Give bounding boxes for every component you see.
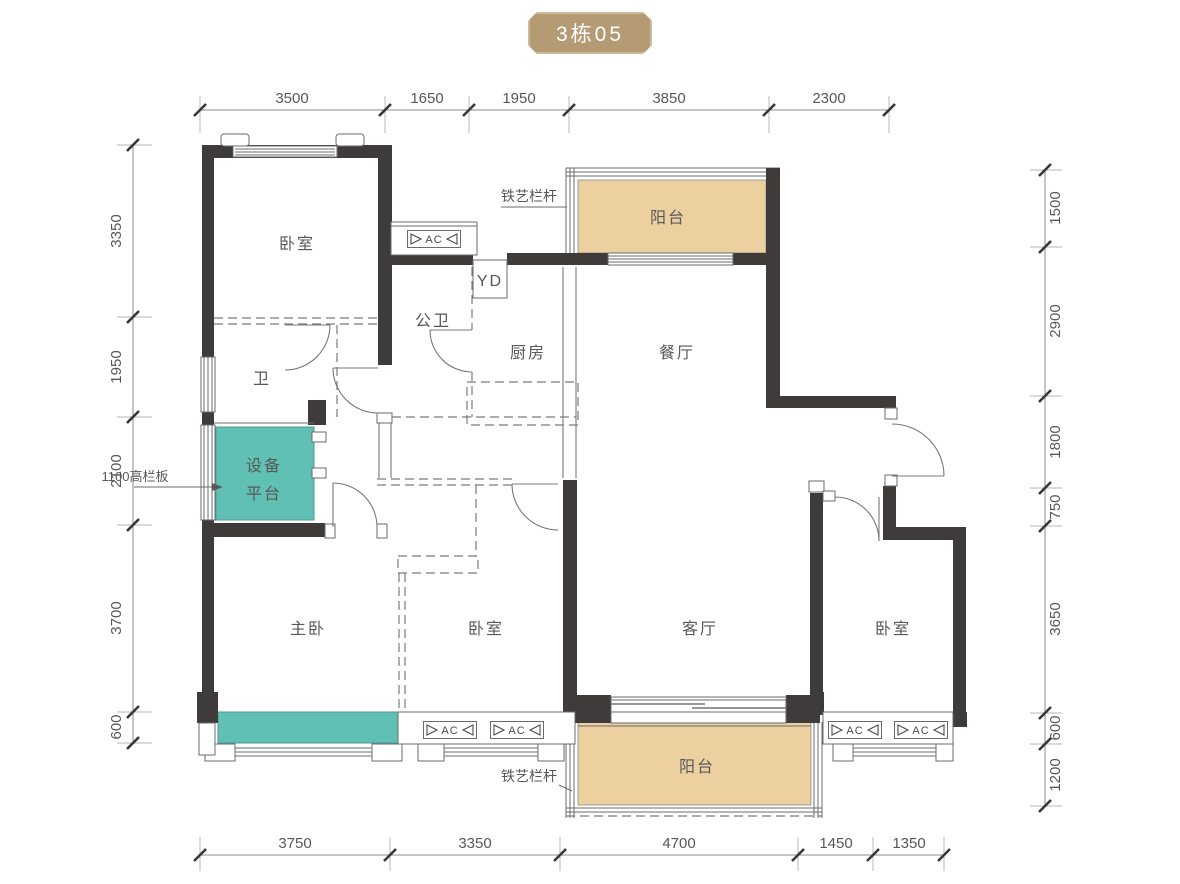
dim-top-1: 3500 bbox=[275, 90, 308, 107]
dim-right-1: 1500 bbox=[1047, 191, 1064, 224]
room-label-balcony-top: 阳台 bbox=[650, 209, 686, 227]
room-label-equipment-2: 平台 bbox=[246, 485, 282, 503]
dim-top-2: 1650 bbox=[410, 90, 443, 107]
dim-bottom-3: 4700 bbox=[662, 835, 695, 852]
dimension-chain-right: 1500 2900 1800 750 3650 600 1200 bbox=[1030, 164, 1064, 812]
ac-unit-mid-right bbox=[491, 722, 544, 739]
room-label-living: 客厅 bbox=[682, 620, 718, 638]
ac-unit-right-left bbox=[829, 722, 882, 739]
dim-right-2: 2900 bbox=[1047, 304, 1064, 337]
dim-bottom-1: 3750 bbox=[278, 835, 311, 852]
dim-bottom-2: 3350 bbox=[458, 835, 491, 852]
room-label-equipment-1: 设备 bbox=[246, 457, 282, 475]
dim-right-3: 1800 bbox=[1047, 425, 1064, 458]
dimension-chain-top: 3500 1650 1950 3850 2300 bbox=[194, 90, 895, 133]
room-label-master-bedroom: 主卧 bbox=[290, 620, 326, 638]
dimension-chain-bottom: 3750 3350 4700 1450 1350 bbox=[194, 835, 950, 871]
ac-unit-top bbox=[408, 231, 461, 248]
master-bay-window bbox=[218, 712, 398, 743]
room-label-kitchen: 厨房 bbox=[510, 344, 546, 362]
yd-shaft-label: YD bbox=[477, 273, 503, 290]
dim-top-5: 2300 bbox=[812, 90, 845, 107]
dim-left-2: 1950 bbox=[108, 350, 125, 383]
dimension-chain-left: 3350 1950 2100 3700 600 bbox=[108, 139, 152, 749]
room-label-bath-master: 卫 bbox=[253, 371, 271, 388]
dim-left-4: 3700 bbox=[108, 601, 125, 634]
dim-top-4: 3850 bbox=[652, 90, 685, 107]
ac-units: YD bbox=[408, 231, 948, 739]
floor-plan-page: 3栋05 AC 3500 1650 1950 3850 2300 bbox=[0, 0, 1180, 884]
dim-right-5: 3650 bbox=[1047, 602, 1064, 635]
dim-left-5: 600 bbox=[108, 714, 125, 739]
room-label-bedroom-right: 卧室 bbox=[875, 620, 911, 638]
room-label-bedroom-top-left: 卧室 bbox=[279, 235, 315, 253]
iron-railing-bottom-label: 铁艺栏杆 bbox=[501, 768, 557, 784]
room-label-bedroom-middle: 卧室 bbox=[468, 620, 504, 638]
iron-railing-top-label: 铁艺栏杆 bbox=[501, 188, 557, 204]
room-label-dining: 餐厅 bbox=[659, 344, 695, 362]
ac-unit-right-right bbox=[895, 722, 948, 739]
dim-right-7: 1200 bbox=[1047, 758, 1064, 791]
ac-unit-mid-left bbox=[424, 722, 477, 739]
room-label-balcony-bottom: 阳台 bbox=[679, 758, 715, 776]
dim-right-4: 750 bbox=[1047, 494, 1064, 519]
room-label-bath-public: 公卫 bbox=[415, 313, 451, 330]
dim-bottom-4: 1450 bbox=[819, 835, 852, 852]
dim-bottom-5: 1350 bbox=[892, 835, 925, 852]
dim-top-3: 1950 bbox=[502, 90, 535, 107]
guard-panel-label: 1100高栏板 bbox=[102, 469, 169, 484]
dim-right-6: 600 bbox=[1047, 715, 1064, 740]
floor-plan-drawing: AC 3500 1650 1950 3850 2300 bbox=[0, 0, 1180, 884]
dim-left-1: 3350 bbox=[108, 214, 125, 247]
